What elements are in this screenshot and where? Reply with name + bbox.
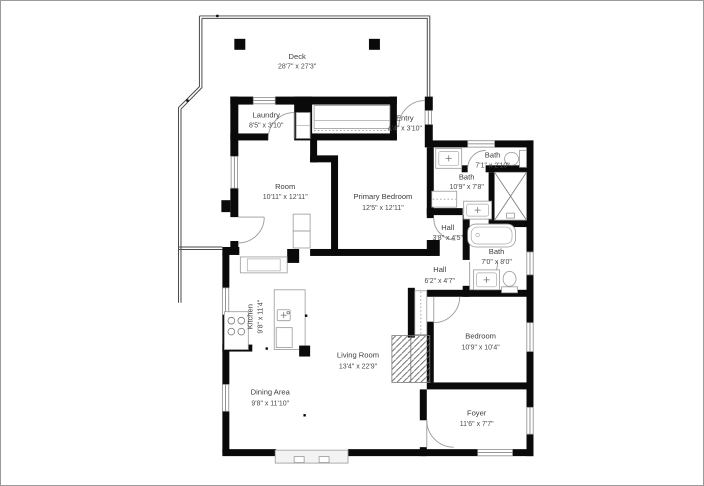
room-dims-label: 8'5" x 3'10" [249, 122, 284, 129]
linen-closet-icon [432, 191, 457, 207]
room-dims-label: 7'1" x 2'10" [475, 162, 510, 169]
stairs-icon [392, 336, 430, 383]
room-name-label: Bedroom [465, 332, 496, 341]
toilet-icon [502, 271, 518, 292]
kitchen-island [274, 290, 310, 357]
room-dims-label: 9'8" x 11'10" [251, 400, 289, 407]
window [468, 141, 495, 147]
island-post-icon [299, 346, 310, 357]
deck-post-icon [234, 39, 245, 50]
dimension-dots [186, 15, 354, 417]
room-dims-label: 7'0" x 8'0" [481, 259, 512, 266]
window [527, 323, 533, 352]
window [222, 384, 228, 411]
bathtub-icon [468, 224, 516, 247]
room-dims-label: 3'8" x 4'5" [432, 235, 463, 242]
sink-icon [474, 270, 500, 290]
room-name-label: Room [275, 182, 295, 191]
room-dims-label: 11'6" x 7'7" [460, 421, 494, 428]
room-name-label: Dining Area [251, 387, 291, 396]
sink-icon [464, 201, 492, 219]
sink-icon [436, 148, 462, 168]
fixtures [186, 15, 526, 463]
room-name-label: Bath [489, 247, 505, 256]
room-name-label: Bath [485, 150, 501, 159]
window [527, 252, 533, 275]
room-name-label: Deck [289, 52, 306, 61]
room-name-label: Kitchen [245, 304, 254, 329]
room-dims-label: 10'9" x 10'4" [462, 345, 501, 352]
window [478, 449, 513, 455]
room-name-label: Entry [396, 114, 414, 123]
bay-window-icon [275, 450, 348, 463]
floor-plan-page: Deck 28'7" x 27'3" Laundry 8'5" x 3'10" … [0, 0, 704, 486]
kitchen-counter [240, 257, 287, 273]
washer-dryer-icon [296, 113, 310, 139]
room-name-label: Laundry [253, 111, 281, 120]
builtin-cabinet-icon [293, 214, 310, 248]
window [527, 407, 533, 434]
room-name-label: Hall [441, 223, 454, 232]
room-dims-label: 13'4" x 22'9" [339, 363, 378, 370]
room-dims-label: 9'8" x 11'4" [257, 299, 264, 333]
room-name-label: Hall [433, 265, 446, 274]
window [253, 97, 275, 103]
room-name-label: Primary Bedroom [353, 192, 412, 201]
hall-closet-icon [415, 291, 427, 335]
room-dims-label: 6'2" x 4'7" [425, 278, 456, 285]
room-dims-label: 12'5" x 12'11" [362, 205, 404, 212]
room-dims-label: 4'4" x 3'10" [388, 125, 423, 132]
room-dims-label: 10'9" x 7'8" [449, 184, 484, 191]
closet-icon [314, 106, 392, 131]
room-name-label: Living Room [337, 351, 379, 360]
window [425, 111, 431, 125]
chimney-icon [221, 200, 230, 212]
room-name-label: Foyer [467, 408, 487, 417]
room-dims-label: 28'7" x 27'3" [278, 64, 317, 71]
window [222, 288, 228, 315]
floor-plan-canvas: Deck 28'7" x 27'3" Laundry 8'5" x 3'10" … [1, 1, 703, 485]
window [231, 156, 237, 188]
room-dims-label: 10'11" x 12'11" [263, 194, 308, 201]
room-name-label: Bath [459, 172, 475, 181]
shower-icon [495, 172, 527, 220]
deck-post-icon [369, 39, 380, 50]
